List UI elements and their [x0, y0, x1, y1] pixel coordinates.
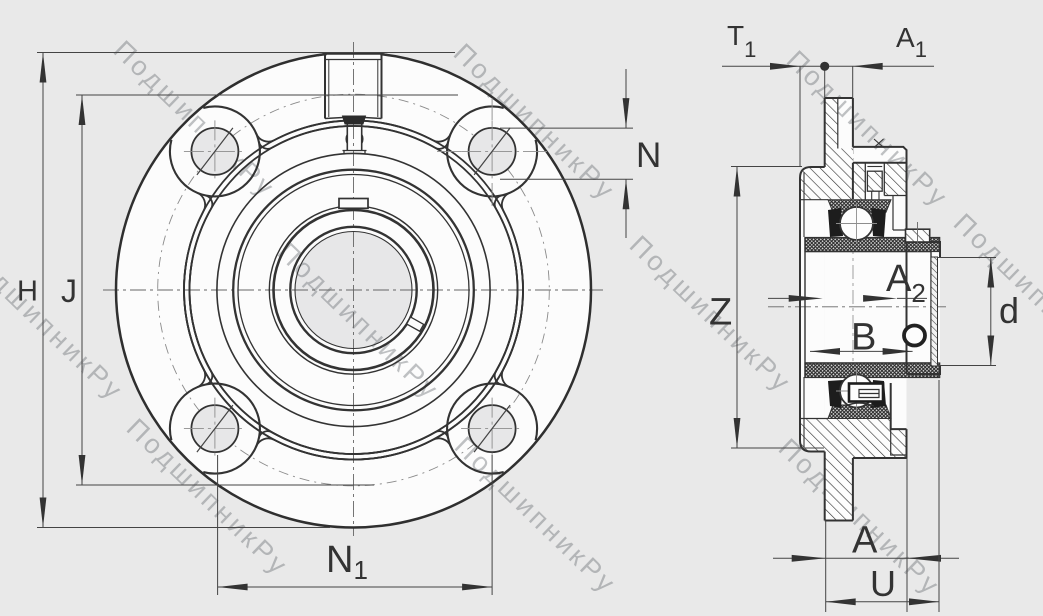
- svg-text:U: U: [870, 563, 896, 604]
- svg-text:B: B: [851, 317, 876, 359]
- svg-text:d: d: [999, 290, 1019, 331]
- svg-text:N: N: [636, 136, 661, 175]
- svg-text:J: J: [61, 273, 77, 309]
- svg-text:H: H: [17, 276, 38, 308]
- svg-text:A: A: [852, 520, 878, 562]
- svg-text:Z: Z: [709, 292, 732, 334]
